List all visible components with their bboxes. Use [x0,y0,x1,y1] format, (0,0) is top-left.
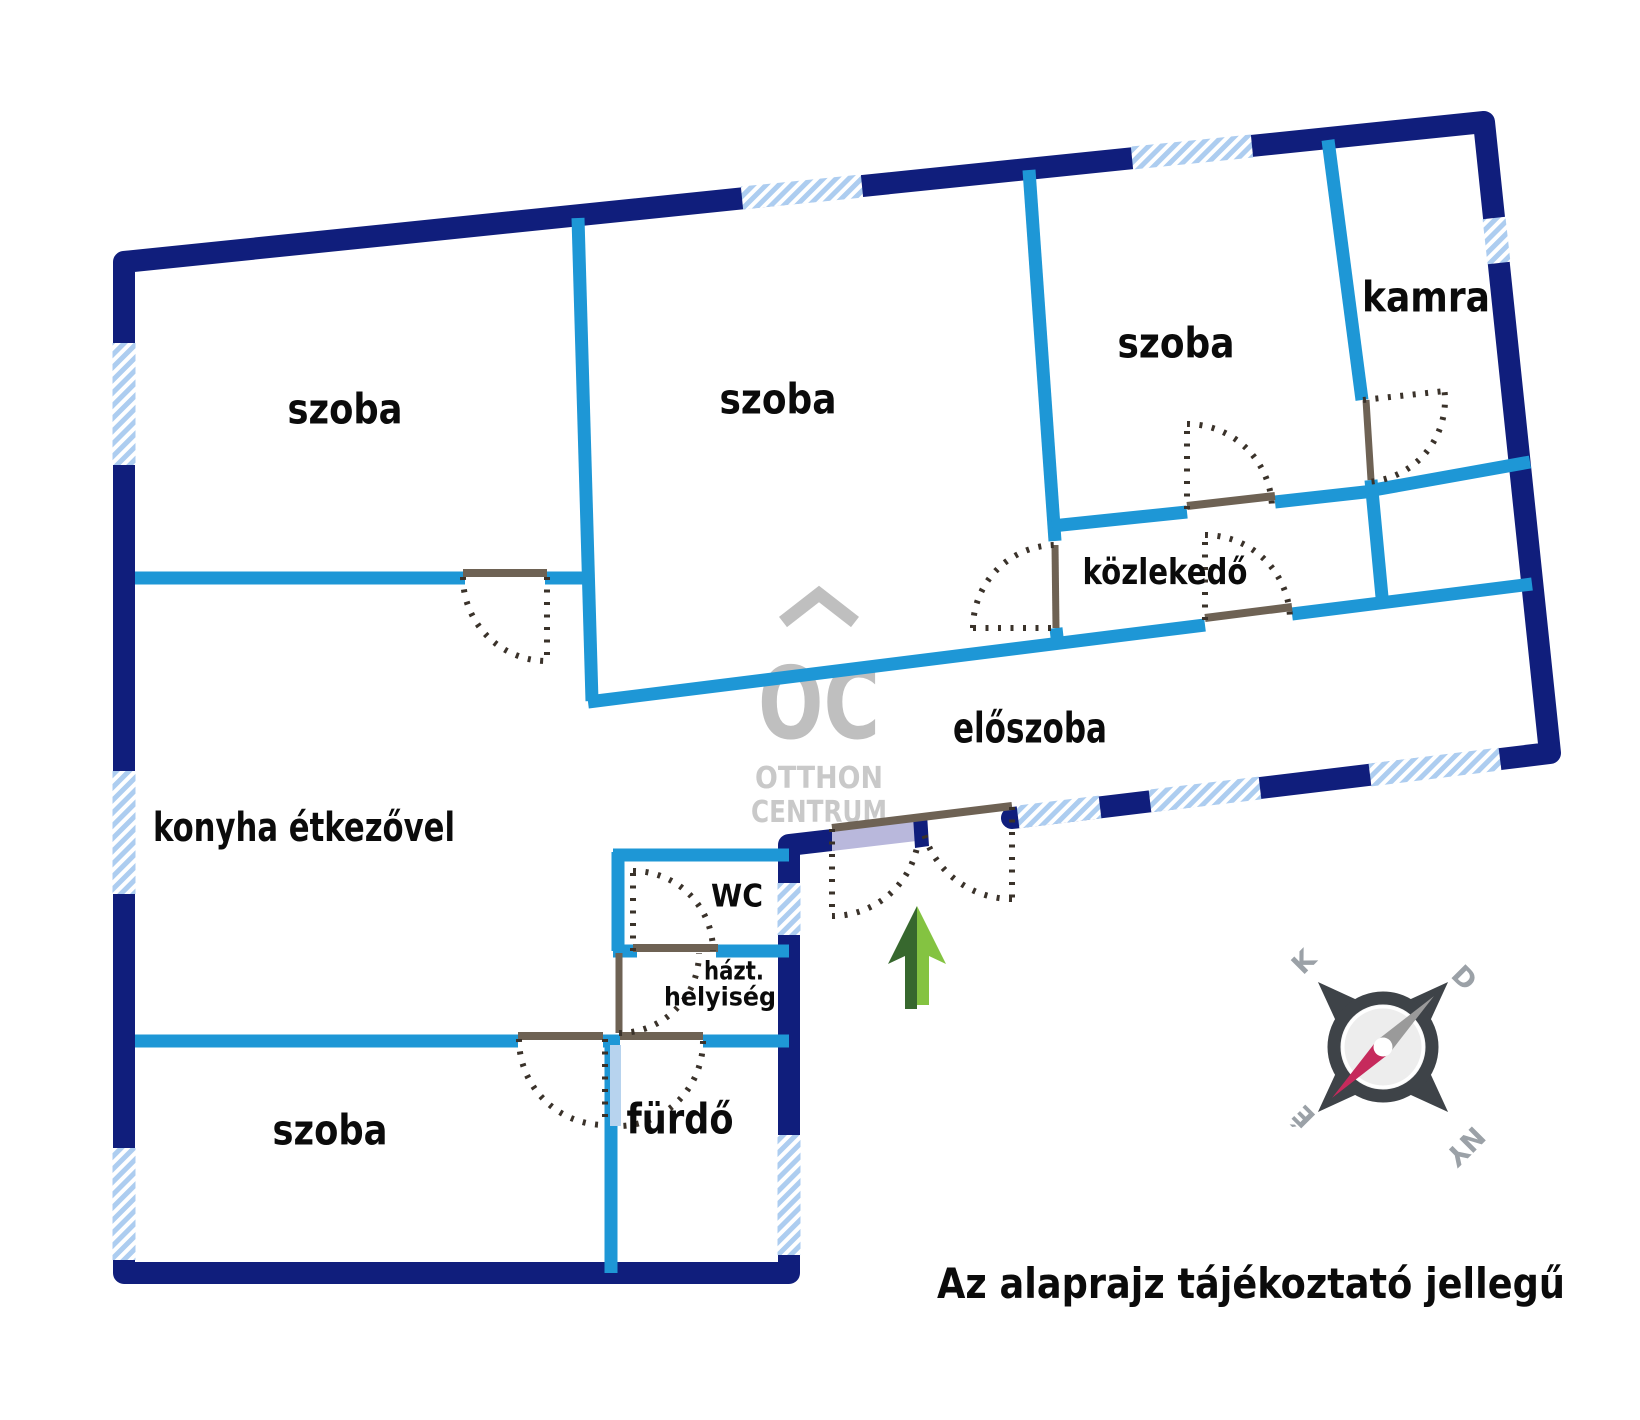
room-label-wc: WC [711,879,763,915]
room-label-eloszoba: előszoba [953,704,1107,753]
room-label-kozlekedo: közlekedő [1083,552,1248,593]
window-eloszoba-2 [1150,788,1260,801]
compass-hub [1374,1038,1393,1057]
floor-plan-page: OCOTTHONCENTRUMszobaszobaszobakamraközle… [0,0,1640,1420]
window-right-kamra [1494,218,1499,263]
window-eloszoba-1 [1018,807,1100,817]
room-label-furdo: fürdő [627,1095,734,1144]
room-label-szoba-top-left: szoba [288,385,403,434]
room-label-kamra: kamra [1362,273,1490,322]
window-top-2 [1132,146,1252,158]
room-label-hazt-line2: helyiség [664,983,776,1013]
window-eloszoba-3 [1370,759,1500,775]
floor-plan-canvas: OCOTTHONCENTRUMszobaszobaszobakamraközle… [0,0,1640,1420]
room-label-konyha: konyha étkezővel [153,805,455,851]
door-leaf-szoba-mid [1055,545,1056,628]
door-leaf-furdo-open [610,1045,621,1126]
room-label-szoba-top-mid: szoba [720,375,837,424]
inner-wall [1056,628,1058,646]
disclaimer-text: Az alaprajz tájékoztató jellegű [937,1259,1565,1308]
window-top-1 [742,186,862,198]
watermark-line1: OTTHON [755,761,883,796]
door-leaf-kamra [1366,400,1371,480]
room-label-szoba-top-right: szoba [1118,319,1235,368]
room-label-szoba-bottom: szoba [273,1106,388,1155]
